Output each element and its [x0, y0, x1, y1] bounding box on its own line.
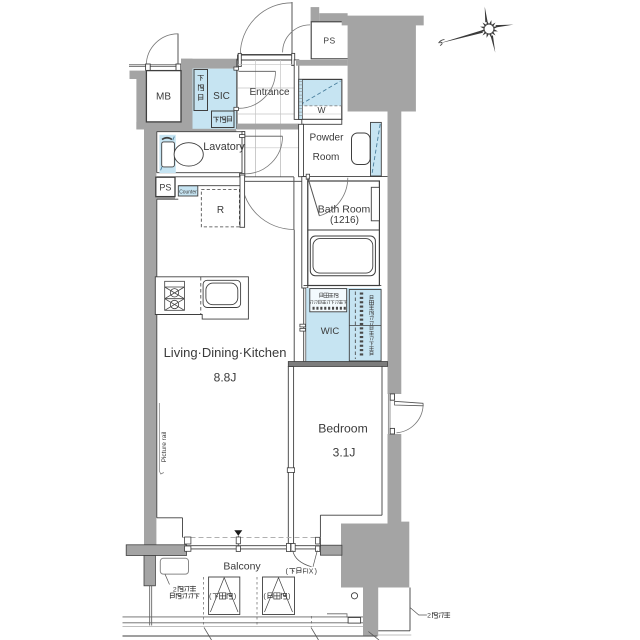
svg-text:2: 2 [427, 613, 431, 620]
svg-text:Picture rail: Picture rail [161, 431, 168, 462]
svg-text:Living·Dining·Kitchen: Living·Dining·Kitchen [164, 345, 287, 360]
svg-text:MB: MB [156, 92, 171, 103]
svg-text:Bath Room: Bath Room [318, 204, 371, 216]
svg-text:Bedroom: Bedroom [318, 422, 367, 436]
svg-text:FIX: FIX [303, 569, 314, 576]
svg-text:W: W [317, 105, 325, 115]
svg-text:8.8J: 8.8J [214, 371, 237, 385]
svg-text:R: R [217, 205, 224, 216]
svg-text:SIC: SIC [213, 91, 230, 102]
svg-text:WIC: WIC [321, 326, 340, 337]
svg-text:Counter: Counter [179, 189, 197, 195]
svg-text:Balcony: Balcony [223, 561, 261, 573]
svg-text:3.1J: 3.1J [333, 446, 356, 460]
svg-text:Entrance: Entrance [249, 87, 289, 98]
svg-text:PS: PS [159, 183, 171, 193]
svg-text:Room: Room [313, 152, 340, 163]
svg-text:2: 2 [173, 586, 177, 593]
svg-text:PS: PS [323, 36, 335, 46]
svg-text:Powder: Powder [310, 133, 345, 144]
svg-text:(1216): (1216) [330, 215, 359, 226]
svg-text:Lavatory: Lavatory [203, 141, 245, 153]
